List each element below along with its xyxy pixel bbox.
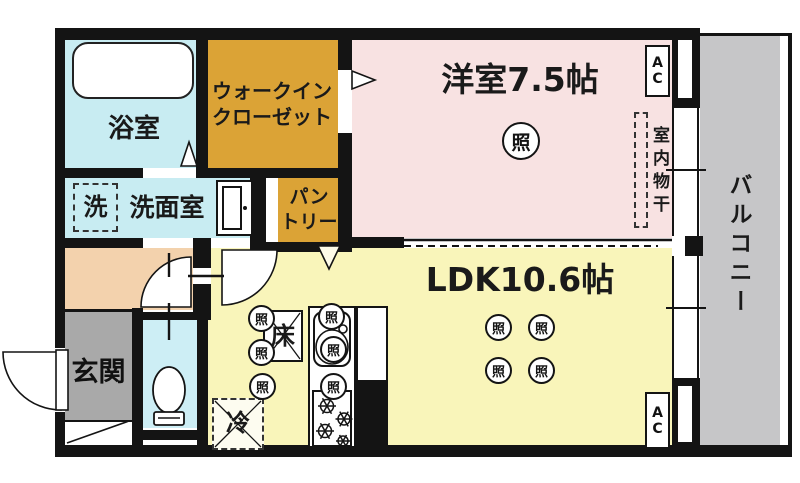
window-line — [672, 256, 674, 378]
room-label-washroom: 洗面室 — [124, 193, 210, 223]
room-label-walk-in-closet: ウォークイン クローゼット — [206, 74, 338, 134]
washer-symbol: 洗 — [73, 192, 118, 224]
balcony-top-wall — [700, 33, 792, 36]
vanity-handle — [243, 206, 247, 210]
wall — [196, 168, 352, 178]
room-label-ldk: LDK10.6帖 — [400, 260, 640, 300]
room-label-balcony: バルコニー — [722, 163, 752, 328]
floor-plan: 浴室 ウォークイン クローゼット 洗面室 洗 パン トリー 洋室7.5帖 LDK… — [0, 0, 800, 483]
balcony-gap — [780, 36, 788, 445]
entrance-porch — [65, 420, 132, 445]
entrance-step-line — [55, 309, 132, 312]
entrance-door-icon — [3, 350, 68, 410]
light-symbol: 照 — [502, 122, 540, 160]
light-symbol: 照 — [485, 357, 512, 384]
light-symbol: 照 — [485, 314, 512, 341]
vanity-sink-icon — [216, 180, 253, 236]
room-label-bath: 浴室 — [94, 115, 174, 145]
window-line — [697, 108, 699, 236]
light-symbol: 照 — [528, 314, 555, 341]
kitchen-counter-top — [356, 306, 388, 382]
wall — [55, 28, 65, 348]
wall — [55, 168, 143, 178]
room-label-western: 洋室7.5帖 — [400, 60, 640, 100]
light-symbol: 照 — [249, 373, 276, 400]
fridge-symbol: 冷 — [212, 409, 264, 439]
wall — [338, 133, 352, 252]
wall — [140, 430, 200, 440]
window-line — [672, 108, 674, 236]
wall — [338, 28, 352, 70]
pantry-opening — [266, 178, 278, 242]
wall — [338, 237, 404, 248]
wall — [143, 312, 197, 320]
ldk-door-jamb-gap — [193, 268, 211, 284]
vanity-door — [222, 186, 242, 230]
light-symbol: 照 — [320, 336, 347, 363]
light-symbol: 照 — [248, 339, 275, 366]
ac-unit-bottom: AC — [645, 392, 670, 449]
room-toilet — [143, 320, 197, 428]
wall — [55, 238, 143, 248]
window-line — [697, 256, 699, 378]
wall — [685, 236, 703, 256]
room-label-pantry: パン トリー — [278, 182, 340, 238]
light-symbol: 照 — [248, 305, 275, 332]
window-frame — [678, 386, 692, 442]
window-frame — [678, 40, 692, 98]
light-symbol: 照 — [318, 303, 345, 330]
bathtub-icon — [72, 42, 194, 99]
light-symbol: 照 — [320, 373, 347, 400]
closet-door-opening — [338, 70, 352, 133]
room-hallway — [65, 248, 193, 310]
indoor-drying-label: 室内物干 — [648, 116, 670, 228]
kitchen-pillar — [356, 382, 388, 448]
ac-unit-top: AC — [645, 45, 670, 97]
balcony-outer-wall — [788, 33, 792, 445]
wall — [55, 28, 700, 40]
light-symbol: 照 — [528, 357, 555, 384]
room-label-entrance: 玄関 — [65, 357, 132, 389]
indoor-drying-pole — [634, 112, 648, 228]
